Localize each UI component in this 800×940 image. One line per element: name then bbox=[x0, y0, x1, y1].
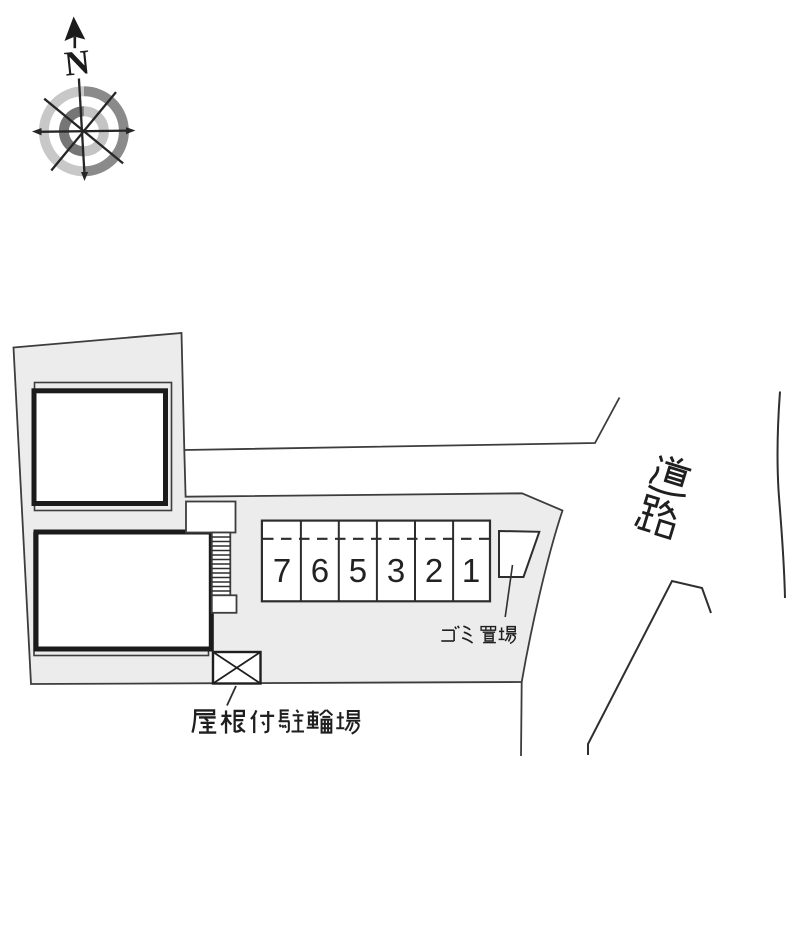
svg-text:N: N bbox=[62, 42, 91, 83]
svg-text:2: 2 bbox=[425, 552, 443, 589]
svg-text:3: 3 bbox=[387, 552, 405, 589]
svg-text:6: 6 bbox=[311, 552, 329, 589]
svg-text:1: 1 bbox=[462, 552, 480, 589]
svg-text:5: 5 bbox=[349, 552, 367, 589]
svg-text:7: 7 bbox=[273, 552, 291, 589]
